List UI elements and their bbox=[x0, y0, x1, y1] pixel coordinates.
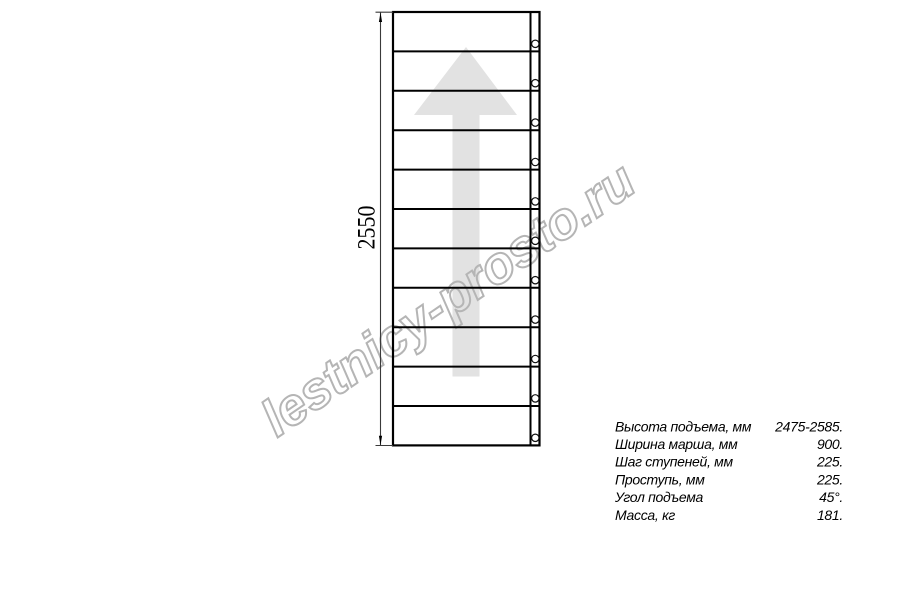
svg-text:Проступь, мм: Проступь, мм bbox=[615, 471, 705, 487]
svg-text:2475-2585.: 2475-2585. bbox=[774, 418, 843, 434]
svg-text:Угол подъема: Угол подъема bbox=[614, 489, 704, 505]
svg-text:181.: 181. bbox=[817, 507, 843, 523]
svg-text:Высота подъема, мм: Высота подъема, мм bbox=[615, 418, 752, 434]
svg-text:225.: 225. bbox=[816, 454, 843, 470]
svg-text:2550: 2550 bbox=[353, 206, 381, 250]
svg-text:Масса, кг: Масса, кг bbox=[615, 507, 675, 523]
svg-text:lestnicy-prosto.ru: lestnicy-prosto.ru bbox=[251, 151, 646, 448]
svg-text:900.: 900. bbox=[817, 436, 843, 452]
svg-text:Шаг ступеней, мм: Шаг ступеней, мм bbox=[615, 454, 733, 470]
svg-text:45°.: 45°. bbox=[819, 489, 843, 505]
svg-text:225.: 225. bbox=[816, 471, 843, 487]
svg-text:Ширина марша, мм: Ширина марша, мм bbox=[615, 436, 738, 452]
